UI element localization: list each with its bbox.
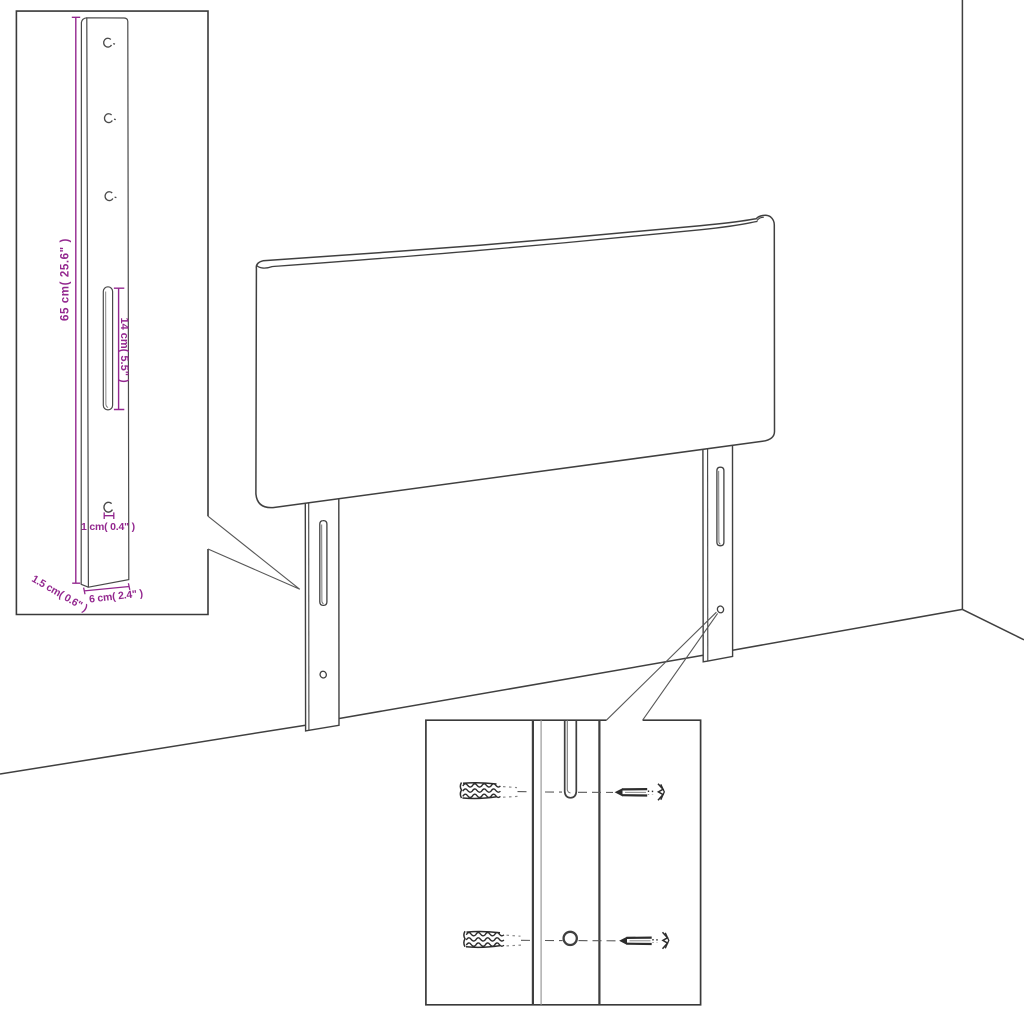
svg-text:65 cm( 25.6" ): 65 cm( 25.6" ) xyxy=(60,238,72,321)
svg-text:1.5 cm( 0.6" ): 1.5 cm( 0.6" ) xyxy=(30,573,90,615)
svg-text:14 cm( 5.5" ): 14 cm( 5.5" ) xyxy=(118,318,130,383)
svg-text:1 cm( 0.4" ): 1 cm( 0.4" ) xyxy=(81,521,135,533)
